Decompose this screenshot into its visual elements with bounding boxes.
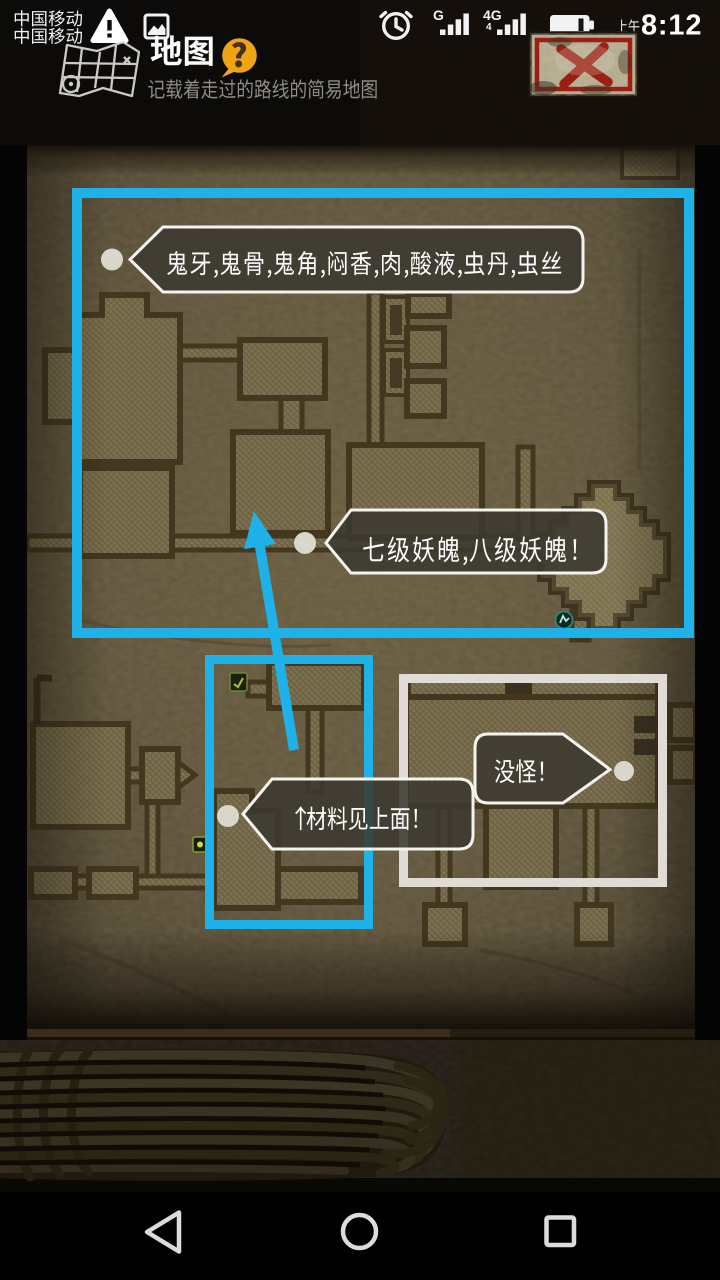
svg-text:8:12: 8:12 — [641, 10, 702, 42]
svg-text:4: 4 — [486, 22, 492, 33]
svg-text:4G: 4G — [483, 7, 502, 23]
svg-text:G: G — [433, 7, 444, 23]
